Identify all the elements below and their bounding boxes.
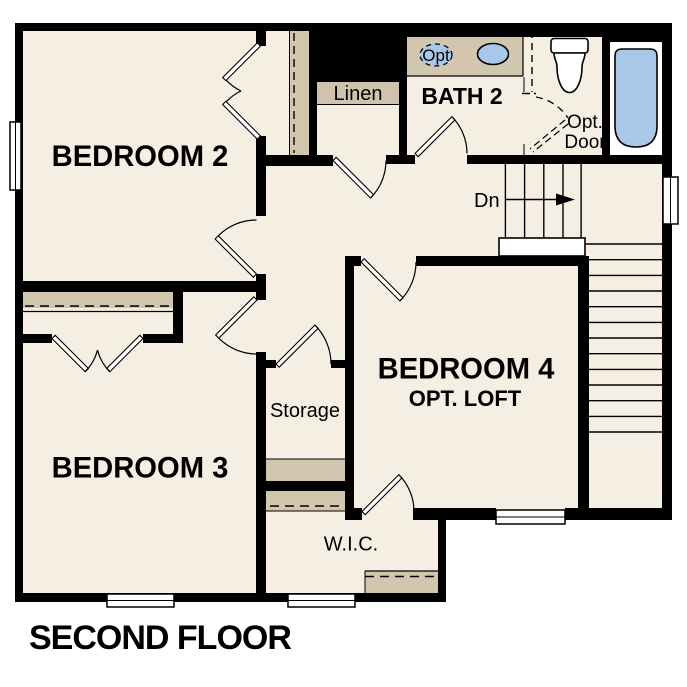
svg-text:W.I.C.: W.I.C. xyxy=(324,534,378,556)
svg-text:Opt: Opt xyxy=(422,46,450,65)
svg-text:BEDROOM 2: BEDROOM 2 xyxy=(52,141,229,173)
svg-text:BATH 2: BATH 2 xyxy=(421,83,502,109)
svg-text:OPT. LOFT: OPT. LOFT xyxy=(409,386,522,411)
svg-text:Door: Door xyxy=(564,132,606,153)
svg-text:Dn: Dn xyxy=(474,190,500,212)
svg-text:SECOND FLOOR: SECOND FLOOR xyxy=(29,619,291,657)
svg-text:Opt.: Opt. xyxy=(567,112,603,133)
svg-text:BEDROOM 3: BEDROOM 3 xyxy=(52,453,229,485)
svg-text:BEDROOM 4: BEDROOM 4 xyxy=(378,354,556,386)
svg-text:Storage: Storage xyxy=(270,400,340,422)
svg-text:Linen: Linen xyxy=(334,83,383,105)
